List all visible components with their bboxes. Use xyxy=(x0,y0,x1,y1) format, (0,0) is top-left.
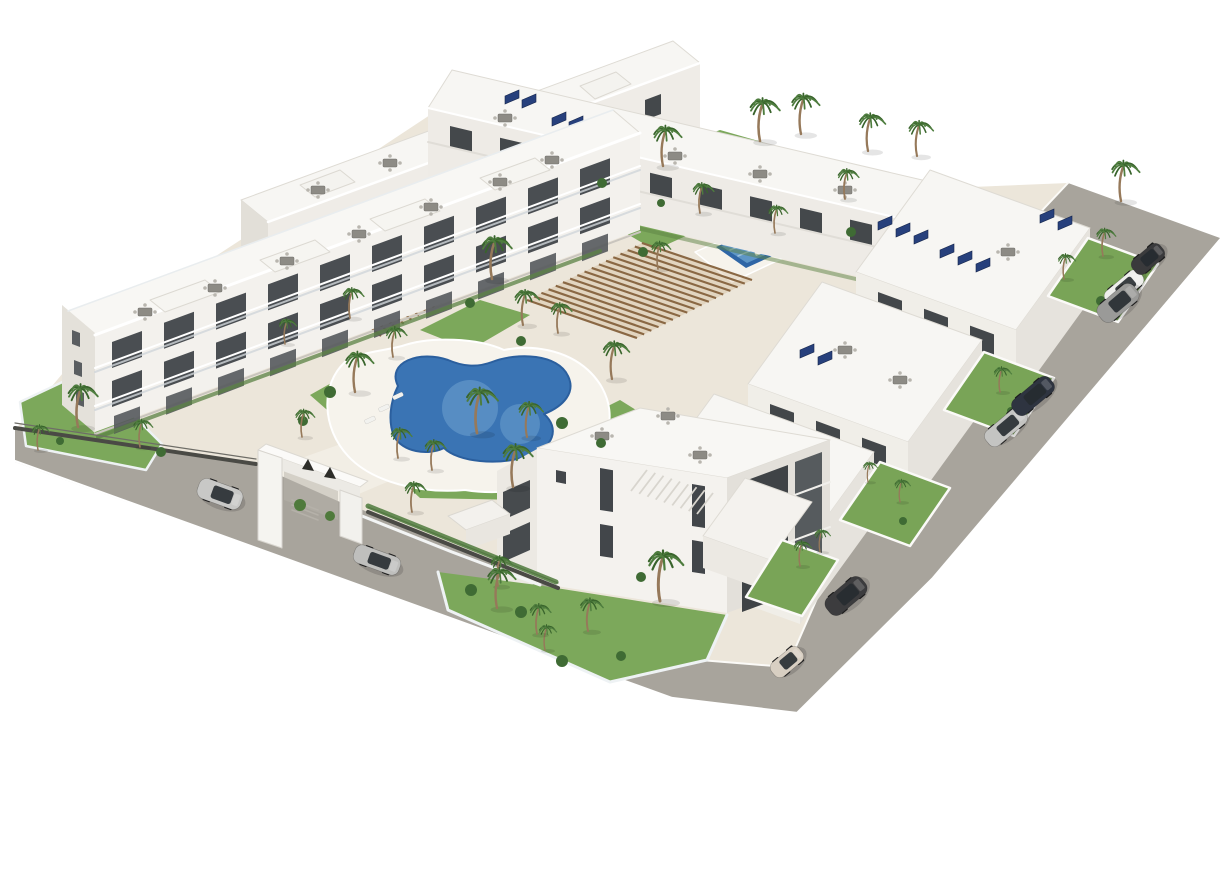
palm-trunk xyxy=(916,125,919,156)
roof-chair xyxy=(853,188,857,192)
roof-chair xyxy=(439,205,443,209)
palm-shadow xyxy=(388,356,405,361)
roof-table-top xyxy=(893,376,907,384)
roof-table-top xyxy=(493,178,507,186)
roof-chair xyxy=(295,259,299,263)
bush xyxy=(596,438,606,448)
roof-chair xyxy=(513,116,517,120)
bush xyxy=(465,298,475,308)
bush xyxy=(636,572,646,582)
roof-chair xyxy=(673,161,677,165)
palm-tree xyxy=(909,121,933,161)
palm-shadow xyxy=(606,378,627,384)
roof-chair xyxy=(698,446,702,450)
roof-chair xyxy=(1006,257,1010,261)
roof-table-top xyxy=(352,230,366,238)
architectural-render xyxy=(0,0,1220,870)
roof-chair xyxy=(1006,243,1010,247)
bush xyxy=(899,517,907,525)
bush xyxy=(515,606,527,618)
palm-shadow xyxy=(796,565,810,569)
roof-chair xyxy=(378,161,382,165)
roof-chair xyxy=(898,385,902,389)
roof-chair xyxy=(316,195,320,199)
palm-shadow xyxy=(71,425,95,432)
palm-tree xyxy=(1112,161,1140,206)
palm-shadow xyxy=(695,212,712,217)
roof-chair xyxy=(508,180,512,184)
bush xyxy=(556,655,568,667)
palm-shadow xyxy=(865,481,876,484)
palm-trunk xyxy=(759,104,763,141)
palm-shadow xyxy=(349,390,371,396)
palm-frond xyxy=(919,125,920,134)
roof-chair xyxy=(748,172,752,176)
roof-chair xyxy=(833,188,837,192)
roof-chair xyxy=(666,407,670,411)
palm-shadow xyxy=(34,449,48,453)
palm-frond xyxy=(870,118,871,127)
palm-shadow xyxy=(911,155,931,161)
palm-shadow xyxy=(996,391,1010,395)
roof-chair xyxy=(398,161,402,165)
roof-chair xyxy=(285,266,289,270)
roof-chair xyxy=(600,427,604,431)
roof-table-top xyxy=(1001,248,1015,256)
roof-chair xyxy=(683,154,687,158)
pool-water-light xyxy=(442,380,498,436)
roof-chair xyxy=(493,116,497,120)
roof-chair xyxy=(676,414,680,418)
site-plan-rendering xyxy=(0,0,1220,870)
palm-shadow xyxy=(771,232,786,236)
roof-chair xyxy=(708,453,712,457)
roof-chair xyxy=(285,252,289,256)
roof-chair xyxy=(843,355,847,359)
palm-shadow xyxy=(136,446,151,450)
bush xyxy=(597,178,607,188)
palm-shadow xyxy=(407,511,424,516)
roof-chair xyxy=(590,434,594,438)
roof-chair xyxy=(503,109,507,113)
bush xyxy=(324,386,336,398)
roof-chair xyxy=(419,205,423,209)
roof-chair xyxy=(898,371,902,375)
palm-shadow xyxy=(281,343,295,347)
palm-shadow xyxy=(1060,278,1074,282)
roof-chair xyxy=(347,232,351,236)
roof-chair xyxy=(843,341,847,345)
roof-table-top xyxy=(661,412,675,420)
palm-shadow xyxy=(753,139,777,146)
palm-shadow xyxy=(816,551,829,555)
roof-chair xyxy=(388,168,392,172)
roof-table-top xyxy=(138,308,152,316)
palm-shadow xyxy=(393,457,410,462)
roof-chair xyxy=(698,460,702,464)
roof-chair xyxy=(550,165,554,169)
roof-chair xyxy=(429,212,433,216)
roof-chair xyxy=(540,158,544,162)
roof-chair xyxy=(758,179,762,183)
roof-chair xyxy=(853,348,857,352)
roof-chair xyxy=(673,147,677,151)
bush xyxy=(616,651,626,661)
roof-chair xyxy=(1016,250,1020,254)
palm-shadow xyxy=(553,332,570,337)
palm-shadow xyxy=(541,649,555,653)
roof-table-top xyxy=(383,159,397,167)
roof-chair xyxy=(223,286,227,290)
windows xyxy=(600,468,613,512)
gate-support xyxy=(340,490,362,544)
palm-shadow xyxy=(506,485,530,492)
palm-shadow xyxy=(583,630,601,635)
window-small xyxy=(556,470,566,484)
roof-chair xyxy=(316,181,320,185)
windows xyxy=(600,524,613,558)
palm-frond xyxy=(803,99,804,109)
roof-chair xyxy=(560,158,564,162)
palm-tree xyxy=(751,98,780,146)
roof-chair xyxy=(663,154,667,158)
roof-chair xyxy=(143,317,147,321)
roof-chair xyxy=(203,286,207,290)
roof-chair xyxy=(888,378,892,382)
palm-shadow xyxy=(345,317,362,322)
palm-shadow xyxy=(840,198,857,203)
bush xyxy=(156,447,166,457)
roof-chair xyxy=(133,310,137,314)
roof-chair xyxy=(357,239,361,243)
roof-chair xyxy=(768,172,772,176)
roof-chair xyxy=(488,180,492,184)
bush xyxy=(846,227,856,237)
roof-chair xyxy=(357,225,361,229)
roof-chair xyxy=(550,151,554,155)
roof-chair xyxy=(429,198,433,202)
palm-trunk xyxy=(1120,166,1124,201)
roof-chair xyxy=(213,279,217,283)
roof-table-top xyxy=(838,346,852,354)
roof-chair xyxy=(143,303,147,307)
roof-table-top xyxy=(693,451,707,459)
palm-shadow xyxy=(654,268,669,272)
palm-frond xyxy=(763,104,764,115)
palm-shadow xyxy=(1115,199,1137,205)
palm-trunk xyxy=(867,118,871,151)
roof-chair xyxy=(610,434,614,438)
roof-table-top xyxy=(753,170,767,178)
roof-chair xyxy=(275,259,279,263)
bush xyxy=(556,417,568,429)
palm-shadow xyxy=(470,431,495,438)
palm-shadow xyxy=(427,469,444,474)
roof-chair xyxy=(213,293,217,297)
palm-frond xyxy=(1123,166,1124,176)
roof-chair xyxy=(758,165,762,169)
palm-shadow xyxy=(896,501,909,505)
roof-chair xyxy=(503,123,507,127)
bush xyxy=(516,336,526,346)
bush xyxy=(56,437,64,445)
roof-chair xyxy=(833,348,837,352)
bush xyxy=(465,584,477,596)
roof-table-top xyxy=(668,152,682,160)
planter xyxy=(294,499,306,511)
roof-table-top xyxy=(311,186,325,194)
palm-shadow xyxy=(795,132,817,138)
planter xyxy=(325,511,335,521)
palm-shadow xyxy=(657,164,679,170)
roof-table-top xyxy=(838,186,852,194)
roof-chair xyxy=(498,187,502,191)
roof-chair xyxy=(908,378,912,382)
palm-shadow xyxy=(652,599,680,607)
palm-tree xyxy=(860,113,886,155)
palm-shadow xyxy=(298,436,313,440)
roof-table-top xyxy=(424,203,438,211)
bush xyxy=(638,247,648,257)
roof-chair xyxy=(688,453,692,457)
roof-chair xyxy=(367,232,371,236)
palm-trunk xyxy=(800,99,804,134)
roof-table-top xyxy=(498,114,512,122)
roof-table-top xyxy=(545,156,559,164)
roof-chair xyxy=(996,250,1000,254)
gate-pillar xyxy=(258,450,282,548)
bush xyxy=(657,199,665,207)
roof-chair xyxy=(326,188,330,192)
roof-table-top xyxy=(280,257,294,265)
roof-table-top xyxy=(208,284,222,292)
palm-tree xyxy=(792,94,820,139)
roof-chair xyxy=(388,154,392,158)
palm-shadow xyxy=(521,436,541,442)
roof-chair xyxy=(153,310,157,314)
palm-shadow xyxy=(517,324,537,330)
palm-shadow xyxy=(862,150,883,156)
palm-shadow xyxy=(491,606,513,612)
palm-shadow xyxy=(532,633,549,638)
palm-shadow xyxy=(485,277,509,284)
palm-shadow xyxy=(1099,255,1114,259)
roof-chair xyxy=(498,173,502,177)
roof-chair xyxy=(666,421,670,425)
roof-chair xyxy=(656,414,660,418)
roof-chair xyxy=(306,188,310,192)
